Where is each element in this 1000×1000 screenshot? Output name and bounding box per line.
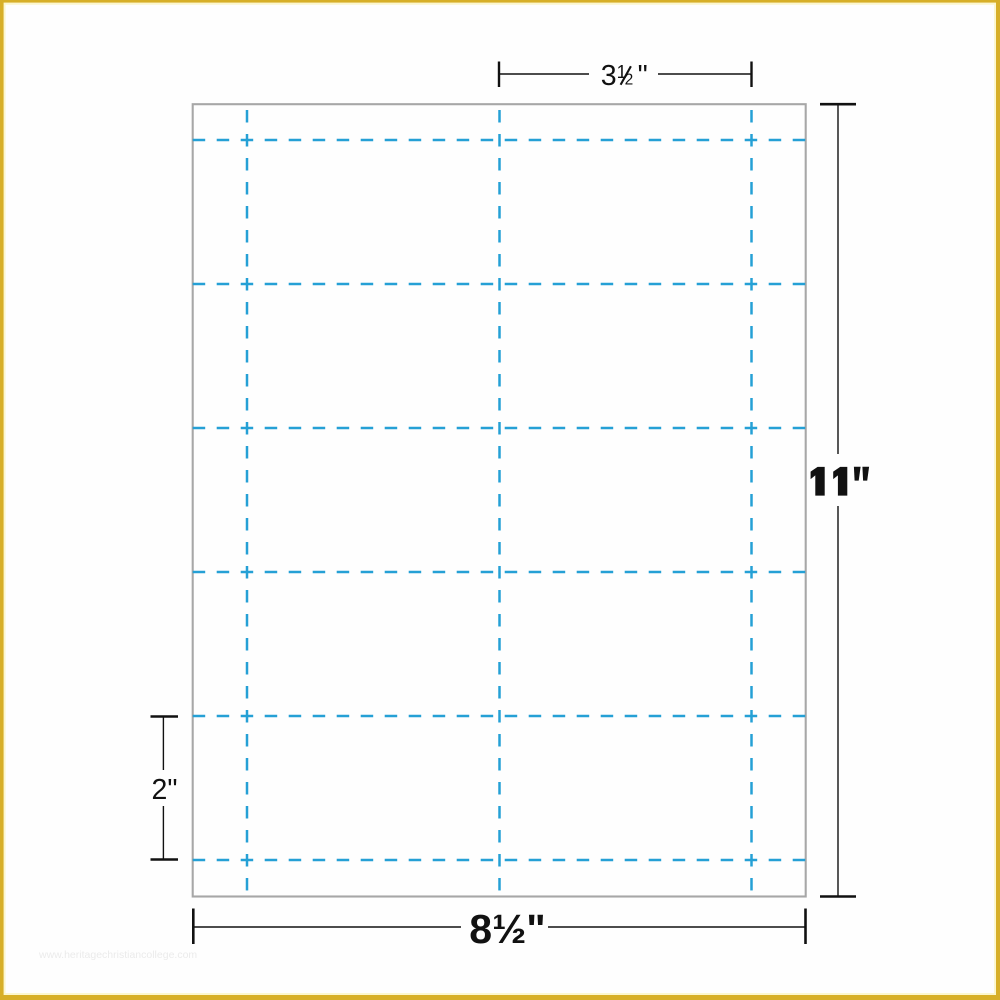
svg-text:2": 2" — [152, 774, 178, 806]
svg-text:www.heritagechristiancollege.c: www.heritagechristiancollege.com — [38, 949, 197, 961]
svg-text:3: 3 — [601, 60, 617, 92]
svg-text:2: 2 — [625, 72, 634, 89]
svg-text:8½": 8½" — [469, 906, 545, 952]
svg-text:": " — [638, 60, 648, 92]
